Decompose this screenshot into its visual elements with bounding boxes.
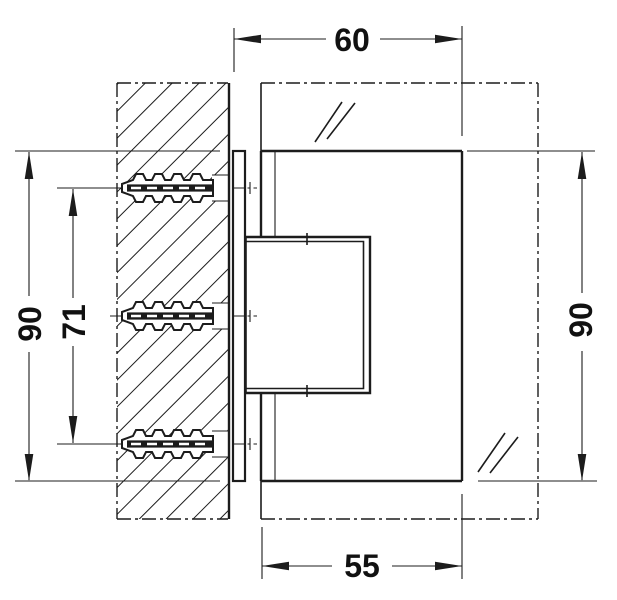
dim-label-90-right: 90 — [563, 302, 599, 338]
dim-label-60: 60 — [334, 22, 370, 58]
dimension-71-left: 71 — [56, 188, 110, 444]
hinge-body — [261, 151, 462, 481]
hinge-center-block — [246, 233, 370, 397]
dim-label-71: 71 — [56, 304, 92, 340]
technical-drawing-canvas: 60 90 71 90 55 — [0, 0, 617, 600]
dim-label-55: 55 — [344, 548, 380, 584]
dimension-90-left: 90 — [12, 152, 48, 481]
dimension-90-right: 90 — [467, 151, 599, 481]
glass-door-outline — [261, 83, 538, 519]
hinge-section-drawing: 60 90 71 90 55 — [0, 0, 617, 600]
glass-symbol-icon-top — [315, 102, 355, 142]
dim-label-90-left: 90 — [12, 306, 48, 342]
dimension-55-bottom: 55 — [262, 494, 462, 584]
glass-symbol-icon-bottom — [478, 433, 518, 473]
dimension-60-top: 60 — [234, 22, 462, 136]
